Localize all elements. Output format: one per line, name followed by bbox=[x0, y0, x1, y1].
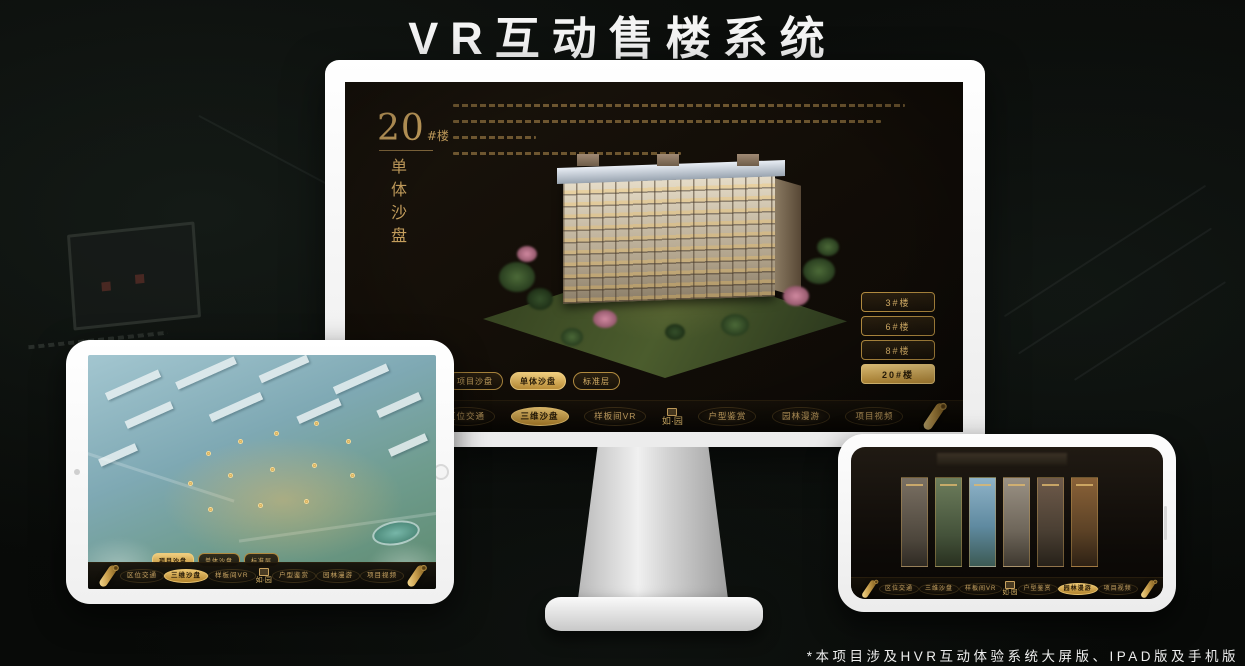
tablet-screen: 项目沙盘 单体沙盘 标准层 区位交通 三维沙盘 样板间VR 如·园 户型鉴赏 园… bbox=[88, 355, 436, 589]
brand-emblem-icon bbox=[1005, 581, 1015, 589]
tree bbox=[817, 238, 839, 256]
nav-item-garden-tour[interactable]: 园林漫游 bbox=[772, 407, 830, 426]
building-marker[interactable] bbox=[188, 481, 193, 486]
building-marker[interactable] bbox=[304, 499, 309, 504]
tree bbox=[665, 324, 685, 340]
interior-ceiling bbox=[937, 453, 1067, 465]
view-tabs: 项目沙盘 单体沙盘 标准层 bbox=[447, 372, 620, 390]
aerial-building bbox=[125, 401, 174, 429]
nav-item-showroom-vr[interactable]: 样板间VR bbox=[959, 583, 1002, 595]
aerial-building bbox=[259, 355, 310, 383]
gallery-panel[interactable] bbox=[969, 477, 996, 567]
community-highlight bbox=[158, 435, 408, 565]
floor-title: 20#楼 bbox=[377, 108, 449, 149]
tree bbox=[499, 262, 535, 292]
nav-item-project-video[interactable]: 项目视频 bbox=[1098, 583, 1138, 595]
background-road-line bbox=[1018, 228, 1212, 355]
floor-button-3[interactable]: 3#楼 bbox=[861, 292, 935, 312]
building-marker[interactable] bbox=[208, 507, 213, 512]
nav-item-unit-plans[interactable]: 户型鉴赏 bbox=[698, 407, 756, 426]
building-facade bbox=[563, 174, 775, 303]
aerial-building bbox=[175, 356, 237, 389]
nav-item-showroom-vr[interactable]: 样板间VR bbox=[584, 407, 646, 426]
nav-item-garden-tour[interactable]: 园林漫游 bbox=[1058, 583, 1098, 595]
brand-logo[interactable]: 如·园 bbox=[256, 568, 272, 584]
camera-icon bbox=[74, 469, 80, 475]
building-marker[interactable] bbox=[350, 473, 355, 478]
background-plaque bbox=[67, 221, 201, 330]
background-road-line bbox=[1074, 281, 1226, 381]
building-marker[interactable] bbox=[270, 467, 275, 472]
building-marker[interactable] bbox=[228, 473, 233, 478]
floor-button-6[interactable]: 6#楼 bbox=[861, 316, 935, 336]
nav-item-location[interactable]: 区位交通 bbox=[879, 583, 919, 595]
footnote: *本项目涉及HVR互动体验系统大屏版、IPAD版及手机版 bbox=[807, 645, 1239, 665]
gallery-panel[interactable] bbox=[1003, 477, 1030, 567]
scroll-menu-icon[interactable] bbox=[861, 579, 877, 599]
floor-selector: 3#楼 6#楼 8#楼 20#楼 bbox=[861, 292, 935, 384]
background-road-line bbox=[198, 115, 331, 187]
scroll-menu-icon[interactable] bbox=[922, 402, 946, 432]
tree bbox=[527, 288, 553, 310]
brand-logo[interactable]: 如·园 bbox=[662, 408, 683, 426]
building-marker[interactable] bbox=[206, 451, 211, 456]
brand-logo-label: 如·园 bbox=[662, 417, 683, 426]
gallery-panel[interactable] bbox=[901, 477, 928, 567]
floor-unit: #楼 bbox=[427, 129, 449, 143]
building-marker[interactable] bbox=[274, 431, 279, 436]
gallery-panel[interactable] bbox=[1037, 477, 1064, 567]
building-marker[interactable] bbox=[346, 439, 351, 444]
building-marker[interactable] bbox=[314, 421, 319, 426]
title-divider bbox=[379, 150, 433, 151]
mode-vertical-label: 单体沙盘 bbox=[385, 158, 409, 288]
monitor-stand-base bbox=[545, 597, 763, 631]
floor-button-20[interactable]: 20#楼 bbox=[861, 364, 935, 384]
tab-single-building[interactable]: 单体沙盘 bbox=[510, 372, 566, 390]
bottom-nav: 区位交通 三维沙盘 样板间VR 如·园 户型鉴赏 园林漫游 项目视频 bbox=[851, 577, 1163, 599]
monitor-stand-neck bbox=[578, 447, 728, 599]
flower-tree bbox=[783, 286, 809, 306]
scroll-menu-icon[interactable] bbox=[1140, 579, 1156, 599]
brand-logo[interactable]: 如·园 bbox=[1002, 581, 1017, 597]
building-marker[interactable] bbox=[238, 439, 243, 444]
roof-dormer bbox=[737, 154, 759, 166]
nav-item-3d-sandbox[interactable]: 三维沙盘 bbox=[919, 583, 959, 595]
roof-dormer bbox=[577, 154, 599, 166]
floor-button-8[interactable]: 8#楼 bbox=[861, 340, 935, 360]
tree bbox=[721, 314, 749, 336]
tab-project-sandbox[interactable]: 项目沙盘 bbox=[447, 372, 503, 390]
aerial-building bbox=[105, 370, 161, 401]
aerial-building bbox=[333, 364, 389, 395]
scroll-menu-icon[interactable] bbox=[406, 564, 426, 588]
nav-item-location[interactable]: 区位交通 bbox=[120, 569, 164, 583]
gallery-panel[interactable] bbox=[935, 477, 962, 567]
scene-gallery bbox=[901, 477, 1098, 567]
nav-item-3d-sandbox[interactable]: 三维沙盘 bbox=[511, 407, 569, 426]
building-marker[interactable] bbox=[258, 503, 263, 508]
bottom-nav: 区位交通 三维沙盘 样板间VR 如·园 户型鉴赏 园林漫游 项目视频 bbox=[88, 562, 436, 589]
brand-logo-label: 如·园 bbox=[1002, 590, 1017, 597]
page-title: VR互动售楼系统 bbox=[0, 2, 1245, 67]
side-button[interactable] bbox=[1164, 506, 1167, 540]
nav-item-unit-plans[interactable]: 户型鉴赏 bbox=[272, 569, 316, 583]
phone-device: 区位交通 三维沙盘 样板间VR 如·园 户型鉴赏 园林漫游 项目视频 bbox=[838, 434, 1176, 612]
aerial-building bbox=[296, 398, 341, 424]
flower-tree bbox=[517, 246, 537, 262]
brand-emblem-icon bbox=[667, 408, 677, 416]
flower-tree bbox=[593, 310, 617, 328]
building-sidewall bbox=[775, 178, 801, 297]
phone-screen: 区位交通 三维沙盘 样板间VR 如·园 户型鉴赏 园林漫游 项目视频 bbox=[851, 447, 1163, 599]
building-marker[interactable] bbox=[312, 463, 317, 468]
nav-item-3d-sandbox[interactable]: 三维沙盘 bbox=[164, 569, 208, 583]
brand-logo-label: 如·园 bbox=[256, 577, 272, 584]
floor-number: 20 bbox=[377, 108, 425, 149]
brand-emblem-icon bbox=[259, 568, 269, 576]
tab-standard-floor[interactable]: 标准层 bbox=[573, 372, 620, 390]
scroll-menu-icon[interactable] bbox=[98, 564, 118, 588]
building-3d-render[interactable] bbox=[465, 142, 865, 382]
nav-item-garden-tour[interactable]: 园林漫游 bbox=[316, 569, 360, 583]
page: VR互动售楼系统 20#楼 单体沙盘 bbox=[0, 0, 1245, 666]
nav-item-showroom-vr[interactable]: 样板间VR bbox=[208, 569, 256, 583]
tablet-device: 项目沙盘 单体沙盘 标准层 区位交通 三维沙盘 样板间VR 如·园 户型鉴赏 园… bbox=[66, 340, 454, 604]
nav-item-project-video[interactable]: 项目视频 bbox=[845, 407, 903, 426]
nav-item-unit-plans[interactable]: 户型鉴赏 bbox=[1018, 583, 1058, 595]
tree bbox=[803, 258, 835, 284]
gallery-panel[interactable] bbox=[1071, 477, 1098, 567]
roof-dormer bbox=[657, 154, 679, 166]
aerial-building bbox=[209, 392, 263, 422]
tree bbox=[561, 328, 583, 346]
nav-item-project-video[interactable]: 项目视频 bbox=[360, 569, 404, 583]
aerial-building bbox=[376, 392, 421, 418]
